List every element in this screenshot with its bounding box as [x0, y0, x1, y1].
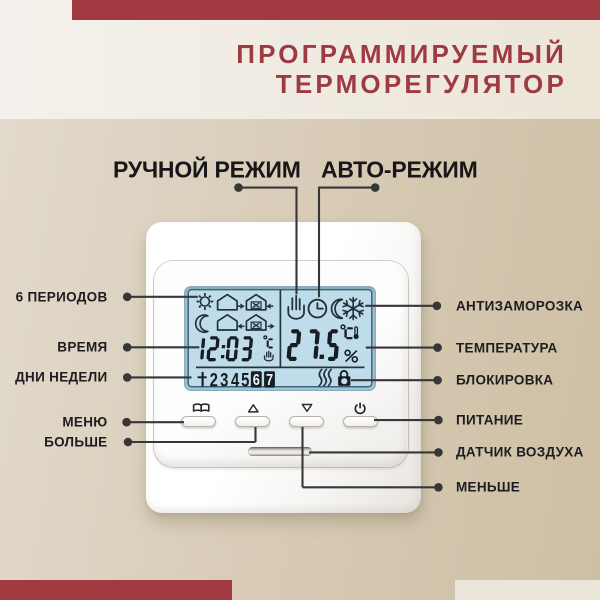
svg-text:6: 6 — [253, 372, 260, 390]
svg-text:4: 4 — [231, 370, 240, 391]
svg-text:7: 7 — [266, 372, 273, 390]
svg-text:5: 5 — [241, 370, 249, 391]
svg-text:2: 2 — [210, 370, 218, 391]
svg-text:3: 3 — [220, 370, 228, 391]
